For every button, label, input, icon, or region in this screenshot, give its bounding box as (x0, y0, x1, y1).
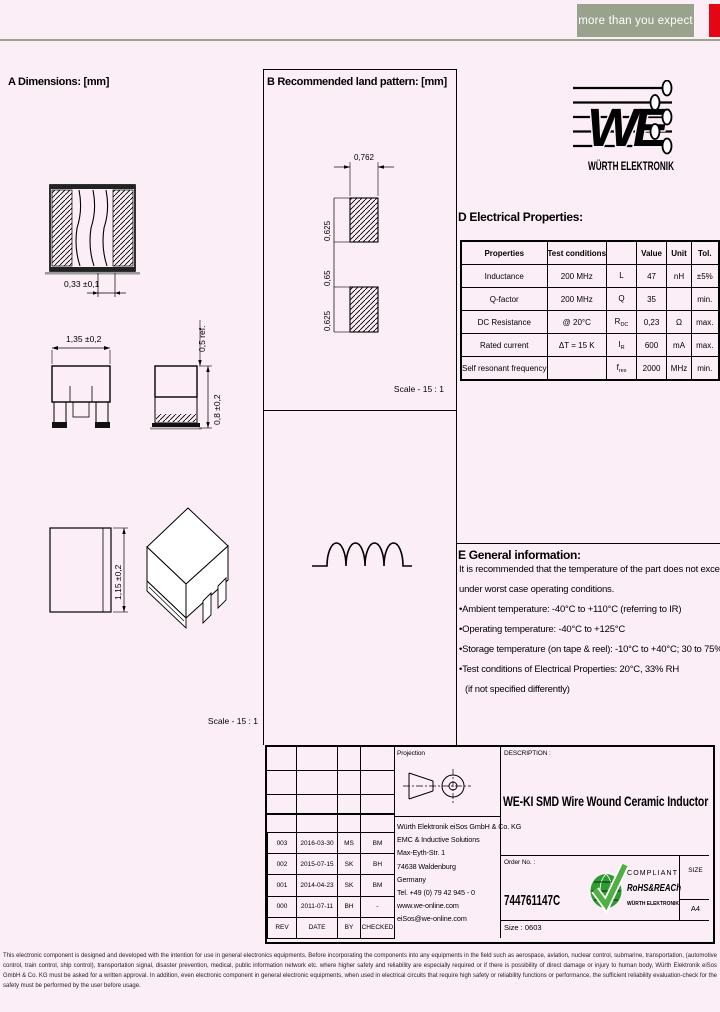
size-line-label: Size : (504, 923, 523, 932)
part-description: WE-KI SMD Wire Wound Ceramic Inductor (503, 794, 708, 809)
brand-red-mark (709, 4, 720, 37)
size-box-label: SIZE (679, 867, 712, 874)
value-cell: 35 (637, 288, 667, 311)
table-row: DC Resistance @ 20°C RDC 0,23 Ω max. (461, 311, 719, 334)
section-e-top-border (456, 543, 720, 544)
property-cell: Self resonant frequency (461, 357, 547, 381)
address-email: eiSos@we-online.com (397, 912, 521, 925)
logo-brand-text: WÜRTH ELEKTRONIK (588, 158, 674, 173)
header-tol: Tol. (692, 241, 719, 265)
info-line: under worst case operating conditions. (459, 580, 720, 600)
svg-text:1,35 ±0,2: 1,35 ±0,2 (66, 334, 102, 344)
tol-cell: max. (692, 334, 719, 357)
title-block: 003 2016-03-30 MS BM 002 2015-07-15 SK B… (265, 745, 715, 944)
description-label: DESCRIPTION : (504, 750, 551, 757)
address-line: EMC & Inductive Solutions (397, 833, 521, 846)
rohs-reach-badge: COMPLIANT RoHS&REACh WÜRTH ELEKTRONIK (589, 859, 681, 921)
scale-label-a: Scale - 15 : 1 (208, 716, 258, 726)
svg-text:0,33 ±0,1: 0,33 ±0,1 (64, 279, 100, 289)
condition-cell: 200 MHz (547, 288, 607, 311)
tol-cell: min. (692, 288, 719, 311)
date-cell: 2015-07-15 (297, 854, 338, 875)
property-cell: Rated current (461, 334, 547, 357)
datasheet-page: more than you expect A Dimensions: [mm] … (0, 0, 720, 1012)
unit-cell: MHz (667, 357, 692, 381)
by-header: BY (338, 917, 361, 938)
by-cell: SK (338, 875, 361, 896)
tol-cell: max. (692, 311, 719, 334)
checked-cell: BM (361, 875, 395, 896)
condition-cell (547, 357, 607, 381)
rev-header: REV (268, 917, 297, 938)
revision-row: 003 2016-03-30 MS BM (268, 833, 395, 854)
date-cell: 2016-03-30 (297, 833, 338, 854)
checked-header: CHECKED (361, 917, 395, 938)
value-cell: 0,23 (637, 311, 667, 334)
unit-cell: mA (667, 334, 692, 357)
order-number-label: Order No. : (504, 859, 535, 866)
revision-table: 003 2016-03-30 MS BM 002 2015-07-15 SK B… (267, 832, 395, 939)
symbol-cell: IR (607, 334, 637, 357)
rev-cell: 001 (268, 875, 297, 896)
size-line: Size : 0603 (504, 923, 542, 932)
by-cell: SK (338, 854, 361, 875)
date-header: DATE (297, 917, 338, 938)
checked-cell: - (361, 896, 395, 917)
size-line-value: 0603 (525, 923, 542, 932)
size-box-value: A4 (679, 904, 712, 913)
height-dimensions: 0,5 ref. 0,8 ±0,2 (197, 320, 222, 428)
property-cell: DC Resistance (461, 311, 547, 334)
address-line: Tel. +49 (0) 79 42 945 - 0 (397, 886, 521, 899)
tagline-banner: more than you expect (577, 4, 694, 37)
table-row: Rated current ΔT = 15 K IR 600 mA max. (461, 334, 719, 357)
symbol-cell: Q (607, 288, 637, 311)
symbol-cell: RDC (607, 311, 637, 334)
header-properties: Properties (461, 241, 547, 265)
header-test-conditions: Test conditions (547, 241, 607, 265)
info-line: It is recommended that the temperature o… (459, 560, 720, 580)
body-width-dimension: 1,35 ±0,2 (52, 334, 110, 364)
svg-text:0,762: 0,762 (354, 153, 375, 162)
table-row: Self resonant frequency fres 2000 MHz mi… (461, 357, 719, 381)
value-cell: 600 (637, 334, 667, 357)
electrical-properties-table: Properties Test conditions Value Unit To… (460, 240, 720, 381)
date-cell: 2014-04-23 (297, 875, 338, 896)
scale-label-b: Scale - 15 : 1 (394, 384, 444, 394)
unit-cell: Ω (667, 311, 692, 334)
address-line: Würth Elektronik eiSos GmbH & Co. KG (397, 820, 521, 833)
table-header-row: Properties Test conditions Value Unit To… (461, 241, 719, 265)
info-bullet: •Operating temperature: -40°C to +125°C (459, 620, 720, 640)
dimension-drawings: 0,33 ±0,1 1,35 ±0,2 (0, 0, 263, 745)
legal-disclaimer: This electronic component is designed an… (3, 951, 717, 991)
info-bullet: •Test conditions of Electrical Propertie… (459, 660, 720, 680)
panel-b-right-border (456, 69, 457, 745)
isometric-view (147, 508, 228, 628)
revision-row: 002 2015-07-15 SK BH (268, 854, 395, 875)
side-view (150, 366, 202, 430)
date-cell: 2011-07-11 (297, 896, 338, 917)
condition-cell: @ 20°C (547, 311, 607, 334)
by-cell: BH (338, 896, 361, 917)
rohs-reach-text: RoHS&REACh (627, 883, 681, 894)
pad-width-dimension: 0,762 (334, 153, 394, 196)
condition-cell: 200 MHz (547, 265, 607, 288)
value-cell: 47 (637, 265, 667, 288)
value-cell: 2000 (637, 357, 667, 381)
rev-row-line (267, 770, 394, 771)
header-value: Value (637, 241, 667, 265)
symbol-cell: fres (607, 357, 637, 381)
svg-text:0,5 ref.: 0,5 ref. (197, 326, 207, 352)
land-pattern-pads (350, 198, 378, 332)
svg-text:0,625: 0,625 (323, 220, 332, 241)
address-line: Germany (397, 873, 521, 886)
tol-cell: min. (692, 357, 719, 381)
tol-cell: ±5% (692, 265, 719, 288)
pad-height-dimensions: 0,625 0,65 0,625 (323, 198, 350, 332)
checked-cell: BH (361, 854, 395, 875)
property-cell: Inductance (461, 265, 547, 288)
projection-box-border (394, 816, 501, 817)
info-note: (if not specified differently) (459, 680, 720, 700)
rev-row-line (267, 794, 394, 795)
table-row: Q-factor 200 MHz Q 35 min. (461, 288, 719, 311)
by-cell: MS (338, 833, 361, 854)
svg-text:0,625: 0,625 (323, 310, 332, 331)
inductor-coil-symbol (312, 543, 412, 566)
rev-cell: 000 (268, 896, 297, 917)
rev-row-line (267, 813, 394, 815)
front-view (52, 366, 110, 428)
svg-text:0,8 ±0,2: 0,8 ±0,2 (212, 394, 222, 425)
rev-cell: 003 (268, 833, 297, 854)
checked-cell: BM (361, 833, 395, 854)
compliant-text: COMPLIANT (627, 870, 679, 877)
terminal-width-dimension: 0,33 ±0,1 (64, 273, 126, 297)
projection-label: Projection (397, 750, 425, 757)
cross-section-view (45, 185, 140, 275)
address-line: 74638 Waldenburg (397, 860, 521, 873)
address-website: www.we-online.com (397, 899, 521, 912)
description-divider (500, 855, 709, 856)
revision-header-row: REV DATE BY CHECKED (268, 917, 395, 938)
size-box-divider (679, 899, 709, 900)
general-information-text: It is recommended that the temperature o… (459, 560, 720, 700)
section-d-title: D Electrical Properties: (458, 210, 583, 224)
rev-col-line (337, 747, 338, 832)
address-line: Max-Eyth-Str. 1 (397, 846, 521, 859)
header-symbol (607, 241, 637, 265)
condition-cell: ΔT = 15 K (547, 334, 607, 357)
manufacturer-address: Würth Elektronik eiSos GmbH & Co. KG EMC… (397, 820, 521, 926)
unit-cell: nH (667, 265, 692, 288)
info-bullet: •Ambient temperature: -40°C to +110°C (r… (459, 600, 720, 620)
symbol-cell: L (607, 265, 637, 288)
projection-symbol-icon (399, 761, 495, 811)
property-cell: Q-factor (461, 288, 547, 311)
badge-brand-text: WÜRTH ELEKTRONIK (627, 900, 679, 907)
rev-cell: 002 (268, 854, 297, 875)
svg-text:1,15 ±0,2: 1,15 ±0,2 (113, 564, 123, 600)
info-bullet: •Storage temperature (on tape & reel): -… (459, 640, 720, 660)
wuerth-logo: WE WÜRTH ELEKTRONIK (560, 80, 715, 175)
top-view: 1,15 ±0,2 (50, 528, 128, 612)
rev-col-line (360, 747, 361, 832)
unit-cell (667, 288, 692, 311)
header-unit: Unit (667, 241, 692, 265)
order-number: 744761147C (504, 892, 560, 909)
svg-text:0,65: 0,65 (323, 270, 332, 286)
land-pattern-drawing: 0,762 0,625 0,65 0,625 Scale - 15 : 1 (263, 0, 456, 745)
revision-row: 001 2014-04-23 SK BM (268, 875, 395, 896)
rev-col-line (296, 747, 297, 832)
revision-row: 000 2011-07-11 BH - (268, 896, 395, 917)
table-row: Inductance 200 MHz L 47 nH ±5% (461, 265, 719, 288)
